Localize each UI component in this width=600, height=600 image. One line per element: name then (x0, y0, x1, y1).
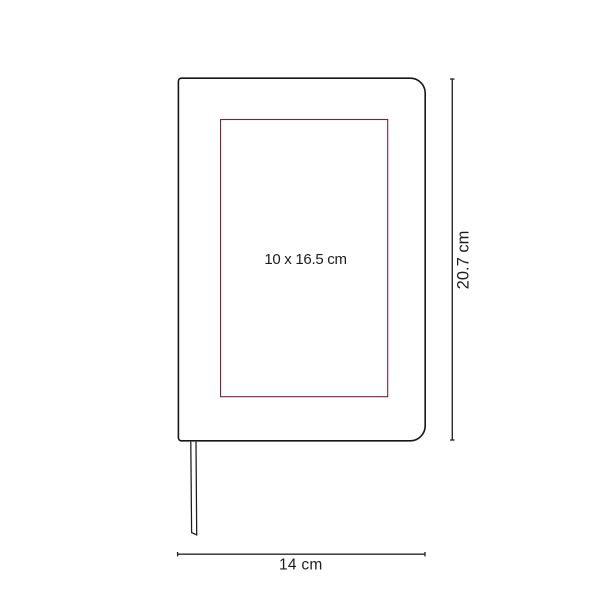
svg-text:14 cm: 14 cm (279, 557, 323, 574)
svg-text:20.7 cm: 20.7 cm (455, 231, 473, 290)
svg-text:10 x 16.5 cm: 10 x 16.5 cm (264, 251, 346, 268)
